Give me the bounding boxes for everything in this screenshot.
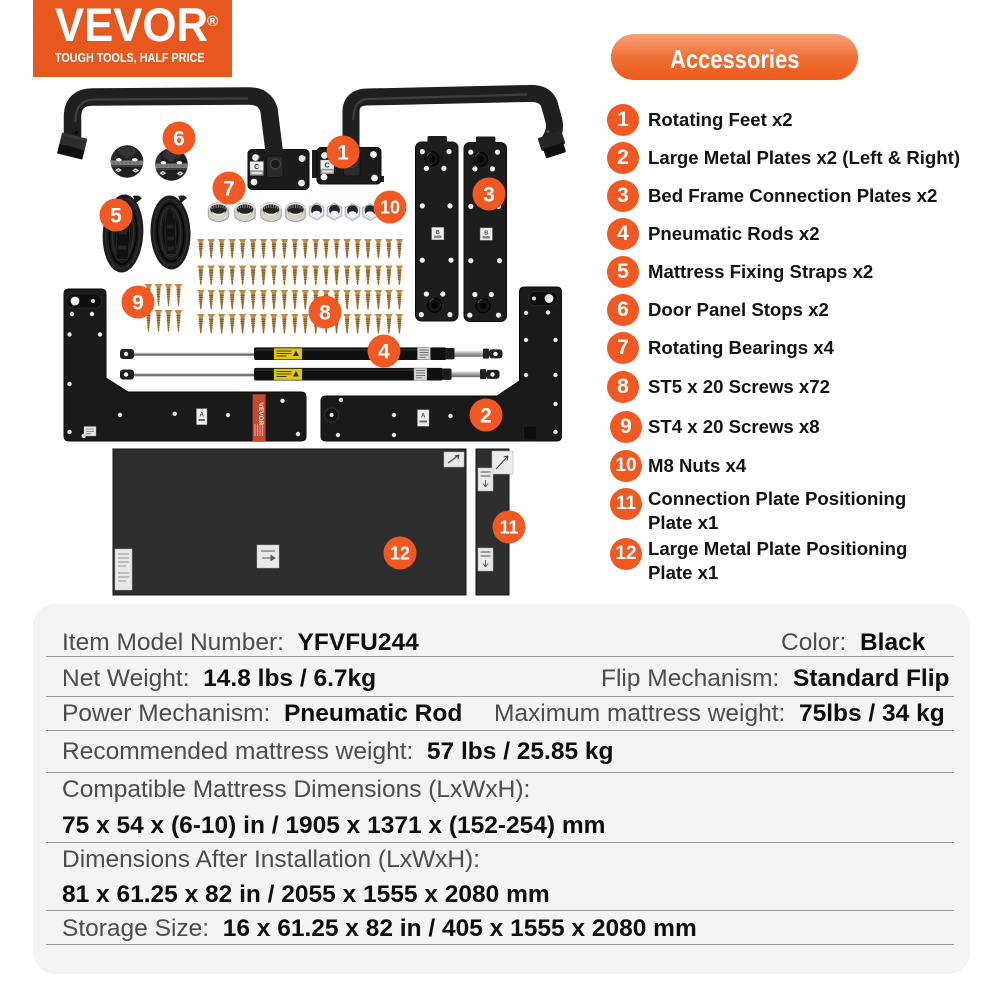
svg-text:2: 2 (480, 405, 492, 428)
svg-text:9: 9 (132, 292, 144, 315)
svg-text:4: 4 (378, 341, 390, 364)
svg-text:A: A (421, 414, 426, 420)
svg-text:C: C (254, 164, 259, 171)
svg-text:12: 12 (390, 544, 410, 564)
svg-text:10: 10 (380, 198, 400, 218)
svg-text:6: 6 (173, 128, 185, 151)
svg-text:7: 7 (223, 178, 235, 201)
svg-text:VEVOR: VEVOR (257, 403, 264, 426)
svg-text:A: A (200, 413, 205, 419)
svg-text:3: 3 (483, 184, 495, 207)
svg-text:1: 1 (337, 142, 349, 165)
svg-text:C: C (325, 163, 330, 170)
svg-text:11: 11 (499, 518, 518, 538)
svg-text:5: 5 (110, 205, 122, 228)
svg-text:8: 8 (319, 302, 331, 325)
